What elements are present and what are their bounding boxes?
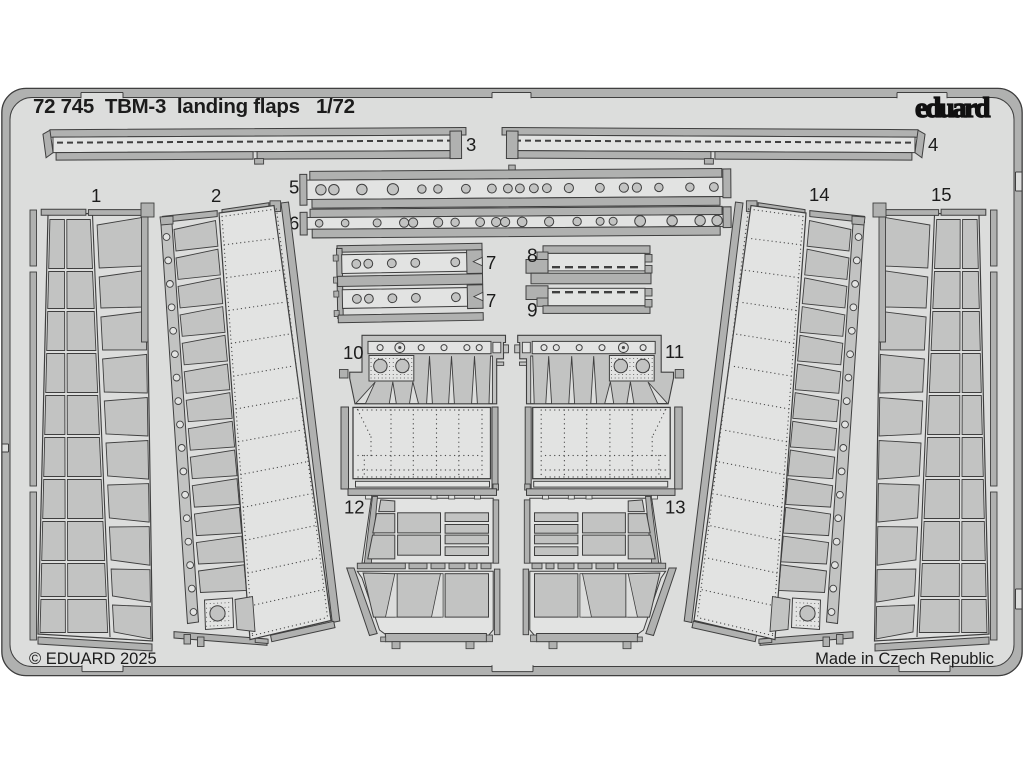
- svg-text:© EDUARD 2025: © EDUARD 2025: [29, 650, 157, 668]
- svg-text:2: 2: [211, 185, 221, 206]
- svg-text:1: 1: [91, 185, 101, 206]
- svg-text:5: 5: [289, 177, 299, 198]
- svg-text:12: 12: [344, 497, 365, 518]
- svg-text:7: 7: [486, 252, 496, 273]
- svg-text:Made in Czech Republic: Made in Czech Republic: [815, 650, 994, 668]
- svg-text:11: 11: [665, 341, 684, 362]
- svg-text:14: 14: [809, 184, 830, 205]
- svg-text:8: 8: [527, 246, 538, 267]
- svg-text:13: 13: [665, 497, 686, 518]
- svg-text:15: 15: [931, 184, 952, 205]
- svg-text:72 745 TBM-3 landing flaps: 72 745 TBM-3 landing flaps 1/72: [33, 95, 355, 118]
- svg-text:10: 10: [343, 342, 364, 363]
- svg-text:eduard: eduard: [915, 92, 991, 124]
- svg-text:9: 9: [527, 301, 538, 322]
- svg-text:3: 3: [466, 134, 476, 155]
- svg-text:4: 4: [928, 134, 938, 155]
- svg-text:7: 7: [486, 290, 496, 311]
